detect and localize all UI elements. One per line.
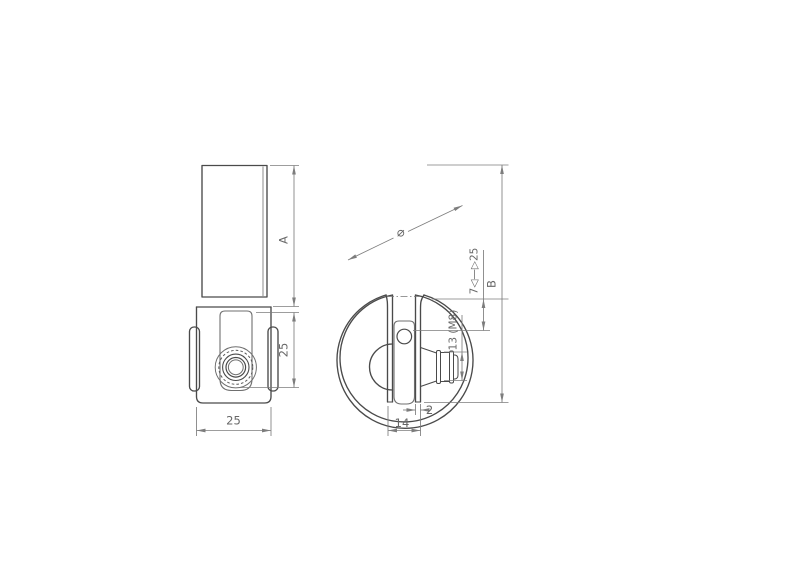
dim-label-strap-width: 14 <box>395 416 410 430</box>
bracket-tab-left <box>190 327 200 391</box>
side-view: A 25 25 <box>190 166 300 437</box>
bolt-head <box>215 347 256 388</box>
dim-label-25-vertical: 25 <box>277 343 291 358</box>
knurl-ring <box>219 350 253 384</box>
front-view: ⌀ 7◁—▷25 13 (M8) <box>337 165 508 436</box>
dim-bolt: 13 (M8) <box>444 310 467 381</box>
dim-diameter: ⌀ <box>348 206 463 261</box>
dim-clamping-range: 7◁—▷25 <box>413 248 509 331</box>
dim-A: A <box>270 166 299 307</box>
clamp-strap-front <box>220 311 252 391</box>
dim-label-diameter: ⌀ <box>397 226 405 241</box>
dim-label-25-horizontal: 25 <box>226 414 241 428</box>
dim-25-horizontal: 25 <box>197 407 272 436</box>
dim-25-vertical: 25 <box>240 313 299 388</box>
ring-legs <box>386 295 424 402</box>
bracket-tab-right <box>268 327 278 391</box>
dim-label-range: 7◁—▷25 <box>469 248 481 295</box>
drawing-page: A 25 25 <box>0 0 800 567</box>
tube-outline <box>202 166 267 298</box>
bracket-body <box>197 307 272 403</box>
technical-drawing-canvas: A 25 25 <box>0 0 800 567</box>
dim-label-b: B <box>485 280 499 288</box>
washer-profile <box>370 344 393 390</box>
dim-label-a: A <box>277 236 291 244</box>
dim-label-bolt: 13 (M8) <box>448 310 460 351</box>
dim-label-thickness: 2 <box>426 403 433 417</box>
bolt-hole <box>397 329 412 344</box>
